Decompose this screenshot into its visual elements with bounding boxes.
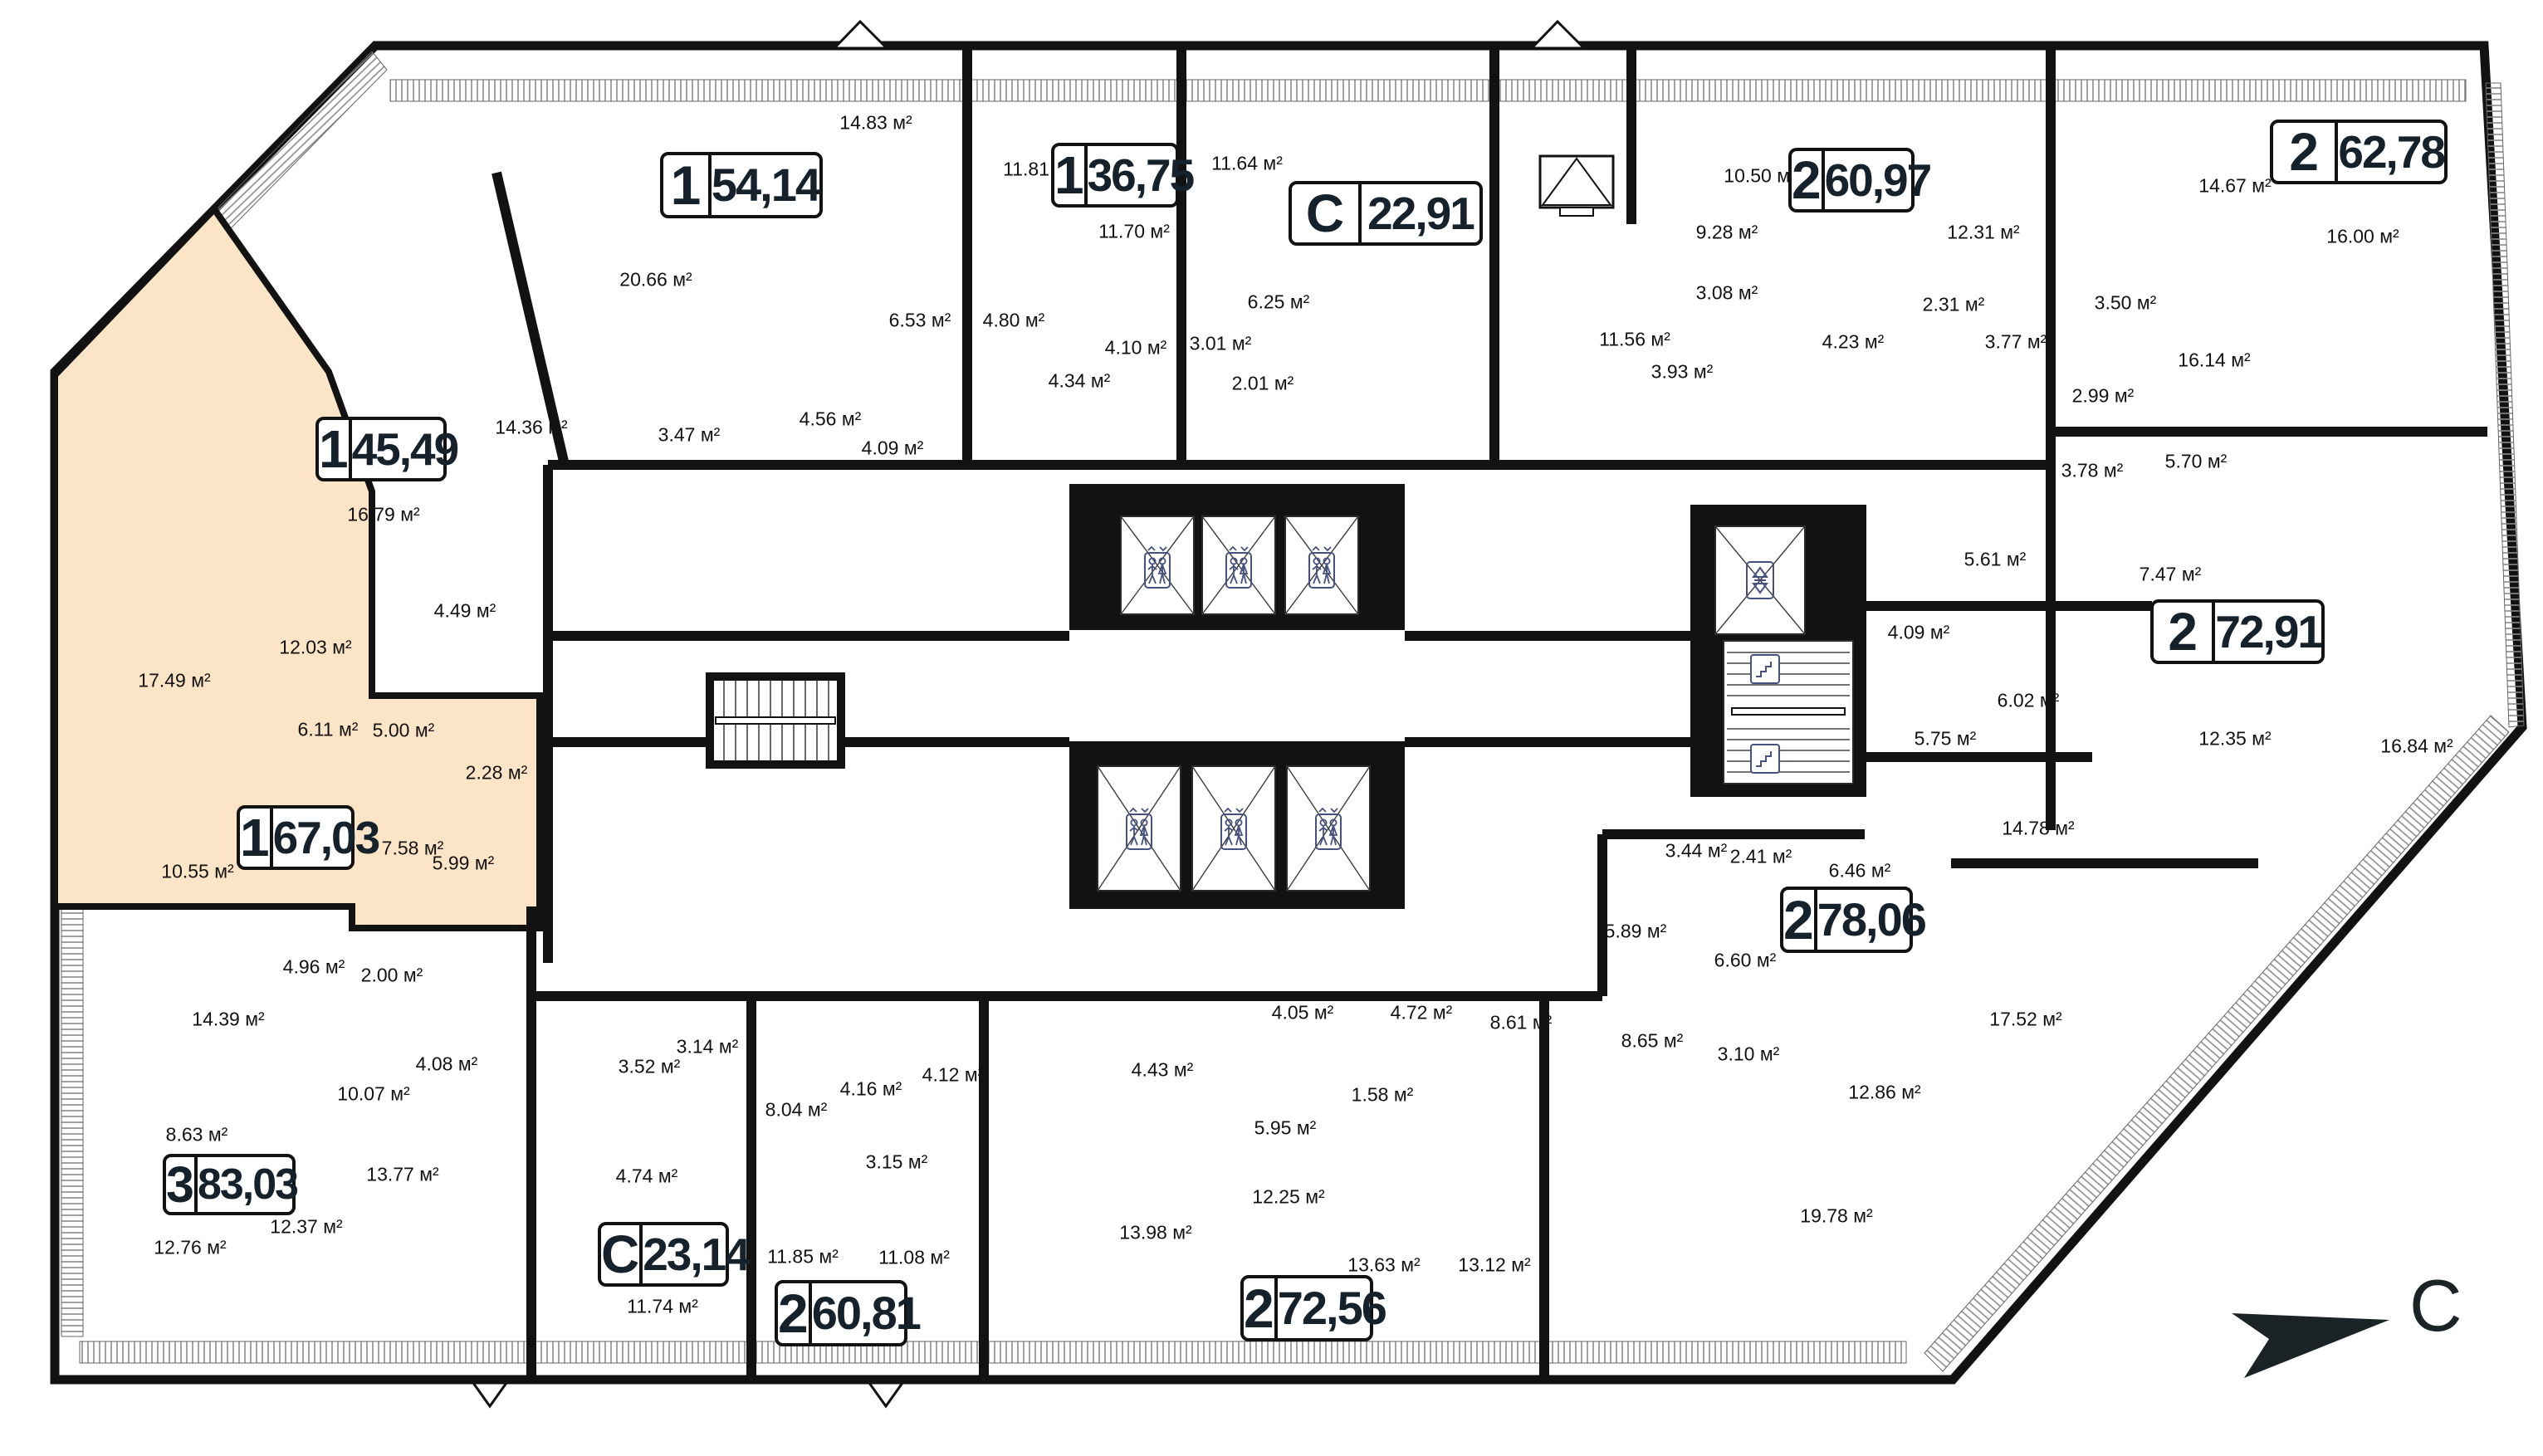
room-area-label: 13.12 м² xyxy=(1458,1254,1530,1277)
room-area-label: 3.47 м² xyxy=(658,424,721,447)
apartment-rooms-count: 2 xyxy=(1783,890,1817,950)
apartment-rooms-count: 1 xyxy=(663,155,712,215)
apartment-badge-67-03[interactable]: 167,03 xyxy=(237,805,355,870)
room-area-label: 17.49 м² xyxy=(138,670,210,692)
apartment-badge-22-91[interactable]: С22,91 xyxy=(1289,181,1483,246)
room-area-label: 2.28 м² xyxy=(466,762,528,784)
room-area-label: 4.16 м² xyxy=(840,1078,902,1101)
apartment-area: 67,03 xyxy=(273,809,379,867)
apartment-area: 54,14 xyxy=(712,155,819,215)
room-area-label: 11.85 м² xyxy=(767,1246,839,1268)
room-area-label: 3.10 м² xyxy=(1718,1043,1780,1066)
room-area-label: 8.61 м² xyxy=(1490,1012,1553,1034)
room-area-label: 3.14 м² xyxy=(677,1036,739,1058)
room-area-label: 8.63 м² xyxy=(166,1124,228,1146)
apartment-rooms-count: 1 xyxy=(240,809,273,867)
room-area-label: 1.58 м² xyxy=(1352,1084,1414,1107)
apartment-badge-83-03[interactable]: 383,03 xyxy=(163,1154,296,1215)
apartment-badge-60-97[interactable]: 260,97 xyxy=(1788,148,1915,213)
apartment-rooms-count: 1 xyxy=(319,420,352,478)
apartment-rooms-count: 2 xyxy=(1792,151,1825,209)
room-area-label: 11.64 м² xyxy=(1211,153,1283,175)
apartment-area: 62,78 xyxy=(2338,123,2444,181)
apartment-rooms-count: 2 xyxy=(1244,1278,1278,1338)
apartment-badge-78-06[interactable]: 278,06 xyxy=(1780,887,1913,953)
apartment-area: 72,56 xyxy=(1278,1278,1386,1338)
room-area-label: 14.83 м² xyxy=(839,112,912,134)
room-area-label: 5.70 м² xyxy=(2165,451,2228,473)
room-area-label: 4.12 м² xyxy=(922,1064,985,1087)
apartment-area: 60,81 xyxy=(812,1283,920,1343)
apartment-rooms-count: С xyxy=(1292,184,1362,242)
room-area-label: 10.50 м² xyxy=(1724,165,1796,188)
room-area-label: 4.96 м² xyxy=(283,956,345,979)
room-area-label: 12.25 м² xyxy=(1252,1186,1324,1209)
room-area-label: 3.93 м² xyxy=(1651,361,1714,384)
room-area-label: 4.72 м² xyxy=(1391,1002,1453,1024)
room-area-label: 8.04 м² xyxy=(765,1099,828,1121)
room-area-label: 3.01 м² xyxy=(1190,333,1252,355)
room-area-label: 11.70 м² xyxy=(1098,221,1170,243)
room-area-label: 11.56 м² xyxy=(1599,329,1670,351)
apartment-area: 22,91 xyxy=(1362,184,1479,242)
room-area-label: 2.31 м² xyxy=(1923,294,1985,316)
room-area-label: 14.39 м² xyxy=(192,1009,264,1031)
room-area-label: 4.74 м² xyxy=(616,1165,678,1188)
apartment-badge-36-75[interactable]: 136,75 xyxy=(1051,143,1179,208)
room-area-label: 14.67 м² xyxy=(2198,175,2271,198)
room-area-label: 4.09 м² xyxy=(1888,622,1950,644)
room-area-label: 11.08 м² xyxy=(878,1247,950,1269)
service-core xyxy=(1690,505,1866,797)
room-area-label: 5.75 м² xyxy=(1915,728,1977,750)
room-area-label: 2.01 м² xyxy=(1232,373,1294,395)
room-area-label: 3.78 м² xyxy=(2061,460,2124,482)
room-area-label: 13.98 м² xyxy=(1119,1222,1191,1244)
room-area-label: 11.74 м² xyxy=(627,1296,698,1318)
room-area-label: 12.03 м² xyxy=(279,637,351,659)
room-area-label: 4.05 м² xyxy=(1272,1002,1334,1024)
apartment-rooms-count: 1 xyxy=(1054,146,1088,204)
room-area-label: 5.00 м² xyxy=(373,720,435,742)
room-area-label: 16.84 м² xyxy=(2380,735,2453,758)
room-area-label: 4.23 м² xyxy=(1822,331,1885,354)
apartment-badge-23-14[interactable]: С23,14 xyxy=(598,1222,729,1287)
room-area-label: 4.09 м² xyxy=(862,437,924,460)
apartment-area: 60,97 xyxy=(1825,151,1931,209)
elevator-bank-bottom xyxy=(1069,741,1405,909)
room-area-label: 9.28 м² xyxy=(1696,222,1758,244)
room-area-label: 6.25 м² xyxy=(1248,291,1310,314)
apartment-badge-72-56[interactable]: 272,56 xyxy=(1240,1275,1373,1341)
room-area-label: 4.80 м² xyxy=(983,310,1045,332)
compass-north-arrow-icon xyxy=(2232,1313,2389,1378)
room-area-label: 17.52 м² xyxy=(1989,1009,2061,1031)
room-area-label: 2.41 м² xyxy=(1730,846,1792,868)
room-area-label: 4.43 м² xyxy=(1132,1059,1194,1082)
vent-shaft xyxy=(1540,156,1613,216)
room-area-label: 14.78 м² xyxy=(2002,818,2074,840)
room-area-label: 2.00 м² xyxy=(361,965,423,987)
room-area-label: 16.79 м² xyxy=(347,504,419,526)
room-area-label: 5.95 м² xyxy=(1254,1117,1317,1140)
room-area-label: 3.77 м² xyxy=(1985,331,2047,354)
room-area-label: 6.11 м² xyxy=(298,719,359,741)
room-area-label: 13.63 м² xyxy=(1347,1254,1420,1277)
room-area-label: 3.08 м² xyxy=(1696,282,1758,305)
room-area-label: 5.89 м² xyxy=(1605,921,1667,943)
room-area-label: 4.34 м² xyxy=(1049,370,1111,393)
compass-label: С xyxy=(2409,1263,2462,1348)
stairs-icon xyxy=(1751,655,1779,683)
apartment-badge-62-78[interactable]: 262,78 xyxy=(2270,120,2448,184)
apartment-rooms-count: 2 xyxy=(778,1283,812,1343)
stairs-icon xyxy=(1751,745,1779,773)
room-area-label: 12.86 м² xyxy=(1848,1082,1920,1104)
room-area-label: 12.76 м² xyxy=(154,1237,226,1259)
room-area-label: 13.77 м² xyxy=(366,1164,438,1186)
room-area-label: 8.65 м² xyxy=(1621,1030,1684,1053)
apartment-rooms-count: 2 xyxy=(2154,603,2215,661)
stairwell-left xyxy=(710,677,841,765)
apartment-area: 72,91 xyxy=(2215,603,2321,661)
room-area-label: 16.14 м² xyxy=(2178,349,2250,372)
apartment-badge-54-14[interactable]: 154,14 xyxy=(660,152,823,218)
room-area-label: 14.36 м² xyxy=(495,417,567,439)
room-area-label: 16.00 м² xyxy=(2326,226,2399,248)
apartment-rooms-count: 2 xyxy=(2273,123,2338,181)
room-area-label: 20.66 м² xyxy=(619,269,692,291)
apartment-area: 78,06 xyxy=(1817,890,1925,950)
apartment-badge-45-49[interactable]: 145,49 xyxy=(315,417,447,481)
room-area-label: 10.07 м² xyxy=(337,1083,409,1106)
room-area-label: 3.44 м² xyxy=(1665,840,1728,862)
room-area-label: 6.46 м² xyxy=(1829,860,1891,882)
apartment-rooms-count: 3 xyxy=(166,1157,198,1212)
room-area-label: 7.47 м² xyxy=(2140,564,2202,586)
apartment-area: 23,14 xyxy=(643,1225,749,1283)
apartment-badge-60-81[interactable]: 260,81 xyxy=(775,1280,907,1346)
room-area-label: 10.55 м² xyxy=(161,861,233,883)
apartment-area: 36,75 xyxy=(1088,146,1194,204)
room-area-label: 5.99 м² xyxy=(433,853,495,875)
room-area-label: 3.50 м² xyxy=(2095,292,2157,315)
room-area-label: 4.49 м² xyxy=(434,600,496,623)
elevator-bank-top xyxy=(1069,484,1405,630)
room-area-label: 12.35 м² xyxy=(2198,728,2271,750)
room-area-label: 2.99 м² xyxy=(2072,385,2135,408)
room-area-label: 4.56 м² xyxy=(800,408,862,431)
apartment-badge-72-91[interactable]: 272,91 xyxy=(2150,599,2325,664)
apartment-rooms-count: С xyxy=(601,1225,643,1283)
room-area-label: 6.53 м² xyxy=(889,310,951,332)
apartment-area: 45,49 xyxy=(352,420,458,478)
room-area-label: 5.61 м² xyxy=(1964,549,2027,571)
apartment-area: 83,03 xyxy=(198,1157,297,1212)
room-area-label: 4.08 м² xyxy=(416,1053,478,1076)
room-area-label: 12.37 м² xyxy=(270,1216,342,1239)
room-area-label: 19.78 м² xyxy=(1800,1205,1872,1228)
floor-plan-page: С 14.83 м²20.66 м²6.53 м²4.56 м²4.09 м²3… xyxy=(0,0,2543,1456)
room-area-label: 12.31 м² xyxy=(1947,222,2019,244)
room-area-label: 6.02 м² xyxy=(1998,690,2060,712)
room-area-label: 4.10 м² xyxy=(1105,337,1167,359)
room-area-label: 6.60 м² xyxy=(1714,950,1777,972)
room-area-label: 3.52 м² xyxy=(619,1056,681,1078)
room-area-label: 3.15 м² xyxy=(866,1151,928,1174)
